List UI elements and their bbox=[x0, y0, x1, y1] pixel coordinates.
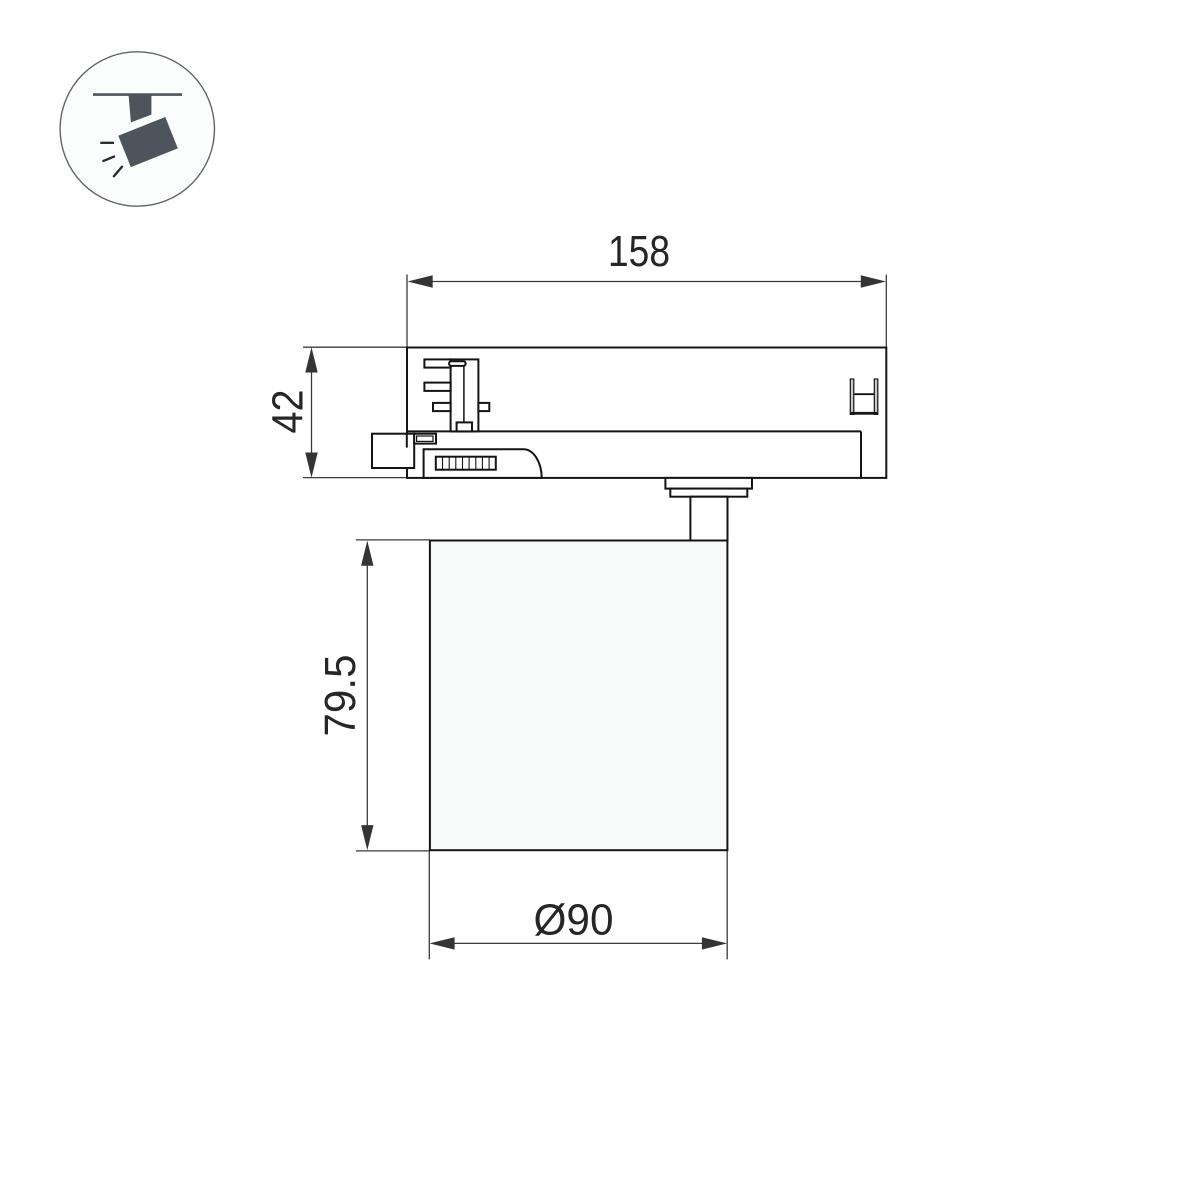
svg-text:Ø90: Ø90 bbox=[534, 896, 614, 945]
svg-text:42: 42 bbox=[264, 390, 313, 434]
svg-text:79.5: 79.5 bbox=[316, 655, 365, 737]
svg-text:158: 158 bbox=[608, 227, 670, 276]
